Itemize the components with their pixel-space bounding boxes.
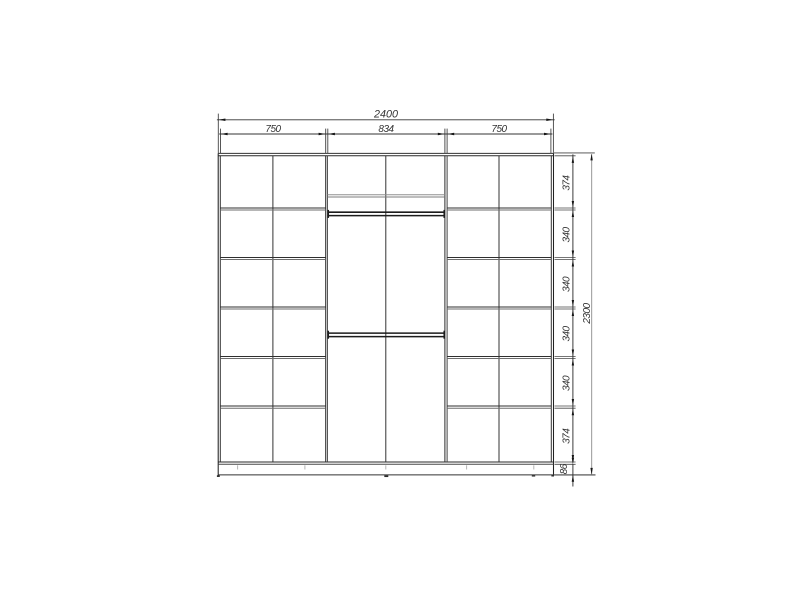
svg-text:86: 86 xyxy=(559,463,570,474)
svg-text:340: 340 xyxy=(561,226,572,242)
svg-text:374: 374 xyxy=(561,428,572,444)
svg-text:374: 374 xyxy=(561,175,572,191)
svg-text:750: 750 xyxy=(265,124,281,135)
svg-text:750: 750 xyxy=(491,124,507,135)
svg-text:2400: 2400 xyxy=(373,109,398,121)
svg-text:834: 834 xyxy=(378,124,394,135)
svg-text:340: 340 xyxy=(561,276,572,292)
svg-text:2300: 2300 xyxy=(582,302,593,324)
svg-text:340: 340 xyxy=(561,375,572,391)
svg-text:340: 340 xyxy=(561,325,572,341)
